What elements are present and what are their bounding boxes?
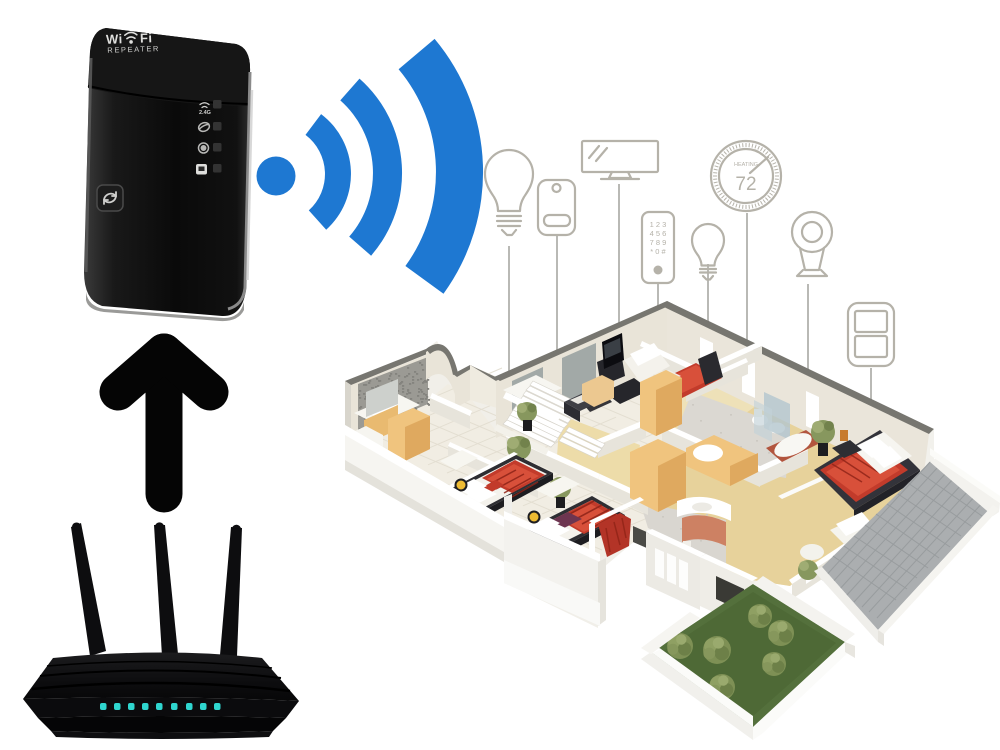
svg-text:72: 72	[735, 174, 756, 195]
svg-text:HEATING: HEATING	[734, 162, 758, 168]
svg-text:* 0 #: * 0 #	[650, 247, 666, 256]
svg-text:4 5 6: 4 5 6	[650, 229, 667, 238]
svg-text:REPEATER: REPEATER	[107, 44, 160, 55]
svg-text:1 2 3: 1 2 3	[650, 220, 667, 229]
svg-text:2.4G: 2.4G	[199, 110, 211, 116]
svg-text:7 8 9: 7 8 9	[650, 238, 667, 247]
